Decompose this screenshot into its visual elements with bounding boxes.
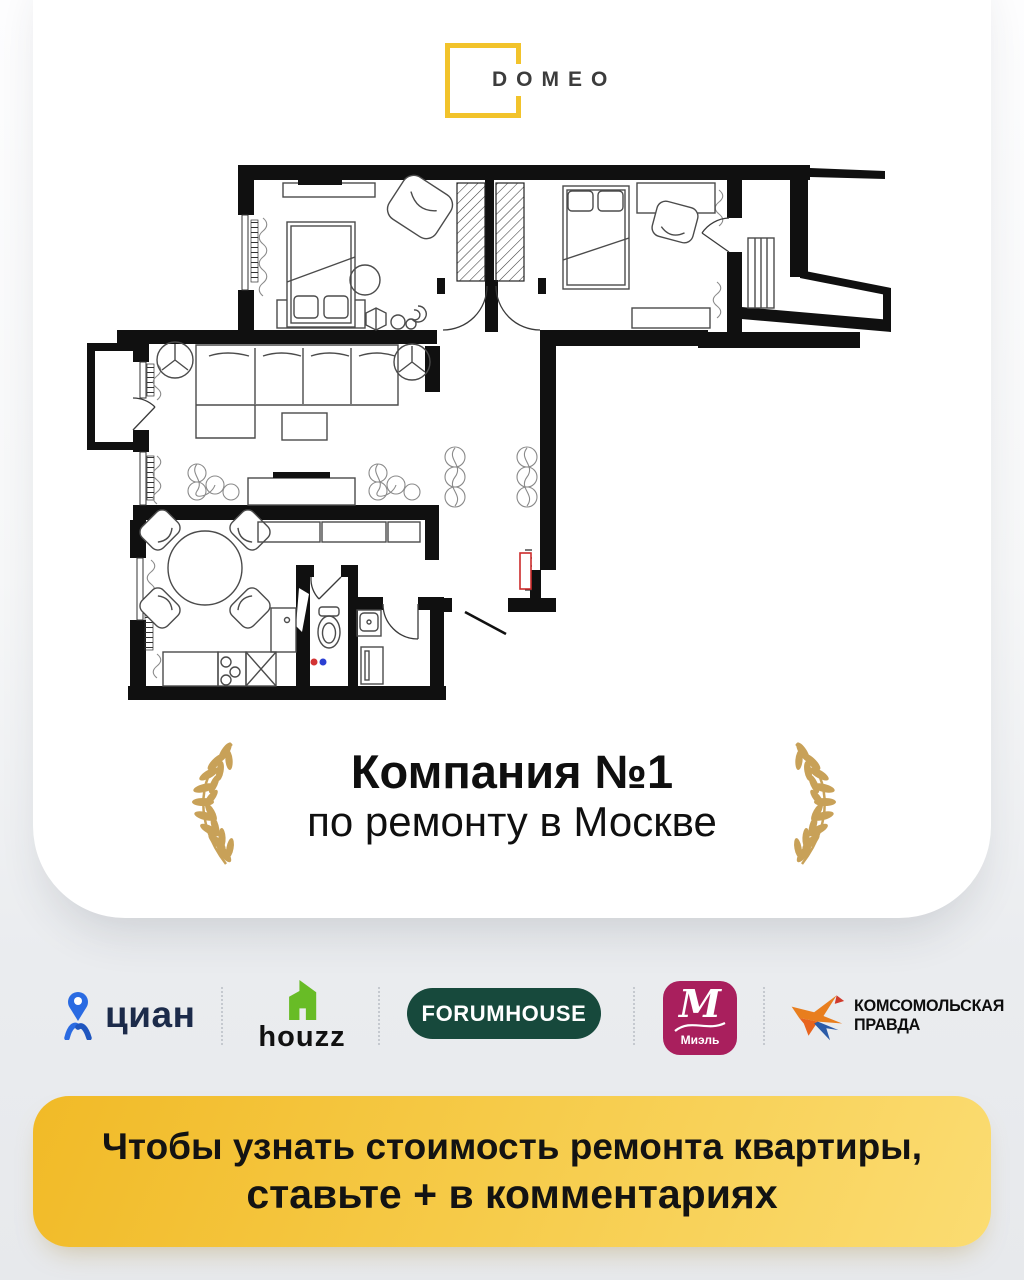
divider <box>221 987 223 1045</box>
plant-icon <box>157 342 193 378</box>
forumhouse-label: FORUMHOUSE <box>422 1001 587 1027</box>
hot-water-dot <box>311 659 318 666</box>
floor-plan <box>85 160 895 705</box>
bathroom <box>357 610 383 684</box>
houzz-house-icon <box>282 980 322 1020</box>
divider <box>763 987 765 1045</box>
armchair-icon <box>383 171 457 243</box>
partner-komsomolskaya-pravda: КОМСОМОЛЬСКАЯ ПРАВДА <box>786 990 1012 1042</box>
sofa-icon <box>196 345 398 438</box>
kitchen-cabinets-icon <box>258 522 420 542</box>
tv-icon <box>298 180 342 185</box>
bed-icon <box>563 186 629 289</box>
partner-miel: М Миэль <box>663 981 737 1055</box>
decor-swirl-icon <box>188 464 239 500</box>
plant-icon <box>394 344 430 380</box>
cta-banner: Чтобы узнать стоимость ремонта квартиры,… <box>33 1096 991 1247</box>
page-background: DOMEO <box>0 0 1024 1280</box>
coffee-table-icon <box>282 413 327 440</box>
toilet-icon <box>318 607 340 648</box>
desk-chair-icon <box>650 199 700 245</box>
miel-label: Миэль <box>681 1033 720 1047</box>
electrical-panel-icon <box>520 553 531 589</box>
laurel-right-icon <box>786 740 852 868</box>
cian-pin-person-icon <box>58 990 98 1040</box>
award-line1: Компания №1 <box>0 746 1024 798</box>
cta-line2: ставьте + в комментариях <box>246 1171 777 1218</box>
decor-swirl-icon <box>445 447 465 507</box>
tv-console-icon <box>248 478 355 505</box>
kitchen <box>137 507 420 686</box>
tv-icon <box>273 472 330 478</box>
wardrobe-icon <box>457 183 485 281</box>
pouf-plant-icon <box>366 306 426 330</box>
living-room <box>157 342 430 505</box>
partners-row: циан houzz FORUMHOUSE М Миэль <box>0 975 1024 1065</box>
kitchen-unit-icon <box>271 608 296 652</box>
miel-monogram: М <box>679 987 721 1021</box>
decor-swirl-icon <box>369 464 420 500</box>
divider <box>378 987 380 1045</box>
partner-houzz: houzz <box>250 980 354 1054</box>
dining-table-icon <box>168 531 242 605</box>
houzz-label: houzz <box>258 1021 345 1054</box>
cta-line1: Чтобы узнать стоимость ремонта квартиры, <box>102 1126 922 1168</box>
cold-water-dot <box>320 659 327 666</box>
hallway <box>445 447 537 589</box>
wardrobe-icon <box>496 183 524 281</box>
bedroom-1 <box>277 171 485 330</box>
award-line2: по ремонту в Москве <box>0 798 1024 846</box>
decor-swirl-icon <box>517 447 537 507</box>
kp-label-line1: КОМСОМОЛЬСКАЯ <box>854 997 1004 1016</box>
miel-swoosh-icon <box>673 1022 727 1032</box>
dresser-icon <box>283 183 375 197</box>
brand-logo-text: DOMEO <box>487 64 616 96</box>
bath-sink-icon <box>357 610 381 636</box>
laurel-left-icon <box>176 740 242 868</box>
kp-bird-icon <box>786 990 846 1042</box>
partner-cian: циан <box>58 990 195 1040</box>
low-dresser-icon <box>632 308 710 328</box>
partner-forumhouse: FORUMHOUSE <box>407 988 601 1039</box>
washing-machine-icon <box>361 647 383 684</box>
kitchen-counter-icon <box>163 652 276 686</box>
bedroom-2 <box>496 183 715 328</box>
award-title: Компания №1 по ремонту в Москве <box>0 746 1024 846</box>
wc <box>311 607 341 666</box>
kp-label-line2: ПРАВДА <box>854 1016 1004 1035</box>
bed-icon <box>287 222 355 327</box>
cian-label: циан <box>105 994 195 1036</box>
balcony-right <box>748 238 774 308</box>
divider <box>633 987 635 1045</box>
